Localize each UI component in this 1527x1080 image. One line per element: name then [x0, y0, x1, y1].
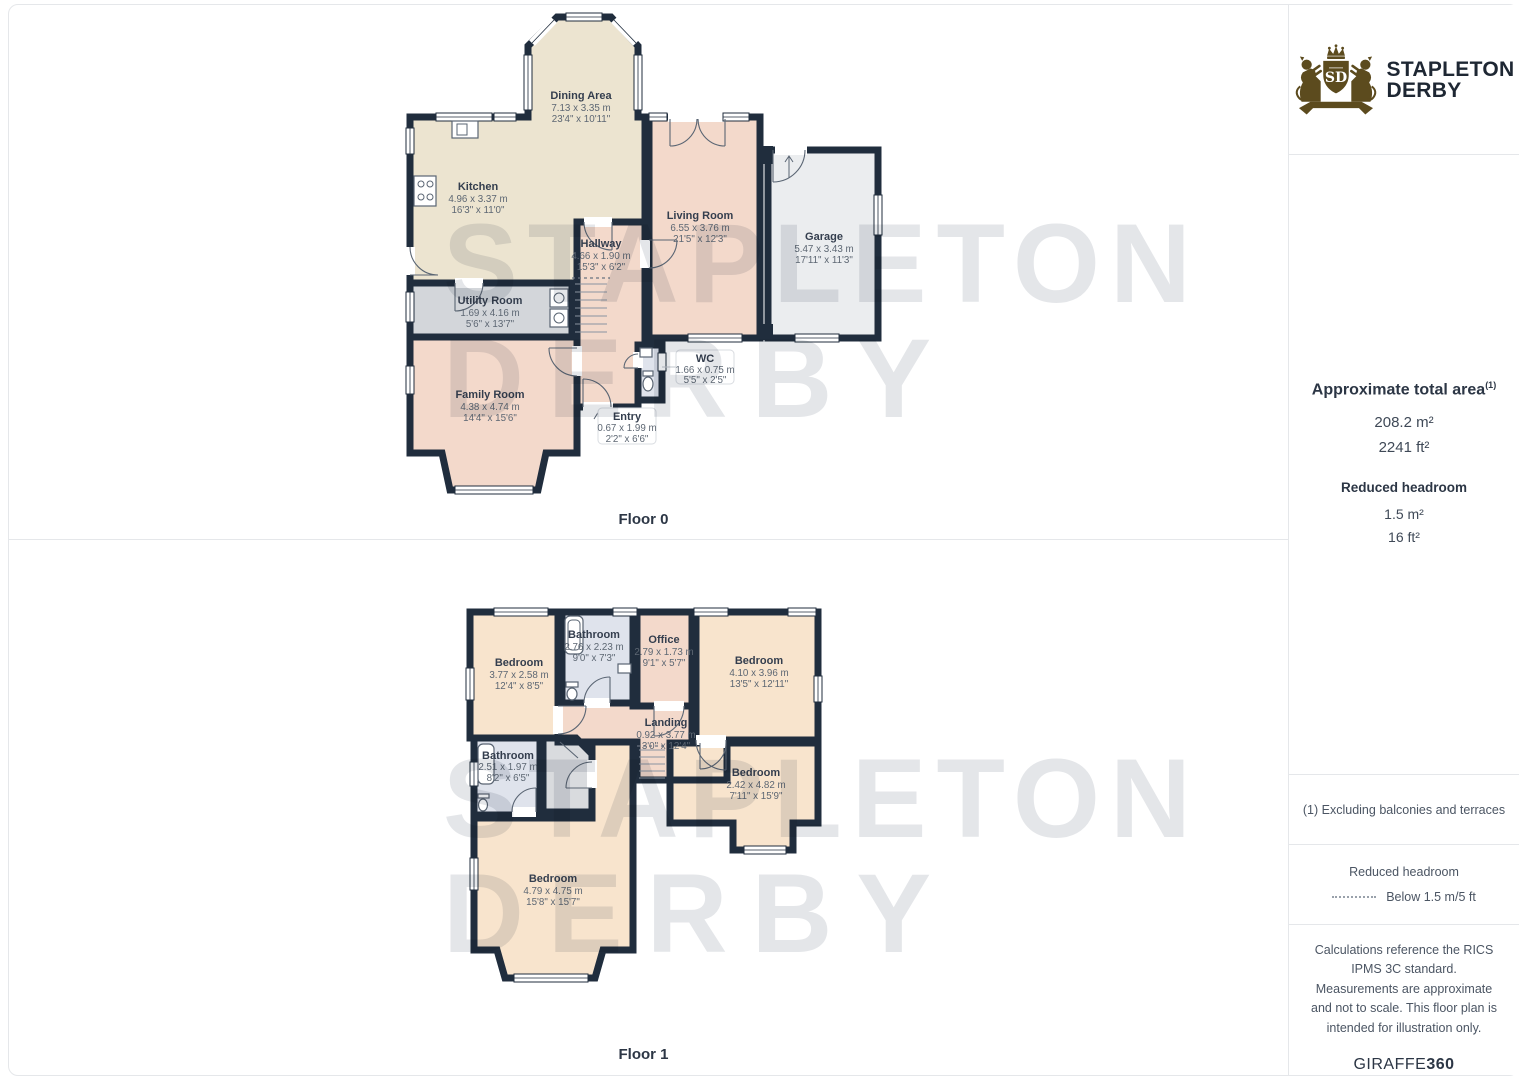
svg-text:2.76 x 2.23 m: 2.76 x 2.23 m [564, 642, 623, 653]
brand-name-line2: DERBY [1387, 80, 1515, 101]
legend-title: Reduced headroom [1349, 865, 1459, 879]
svg-text:9'0" x 7'3": 9'0" x 7'3" [573, 653, 616, 664]
info-sidebar: STAPLETON DERBY Approximate total area(1… [1288, 5, 1519, 1075]
footnote-marker: (1) [1485, 380, 1496, 390]
reduced-headroom-sqft: 16 ft² [1388, 526, 1420, 549]
svg-text:2.79 x 1.73 m: 2.79 x 1.73 m [634, 647, 693, 658]
disclaimer-text: Calculations reference the RICS IPMS 3C … [1309, 941, 1499, 1038]
legend: Reduced headroom Below 1.5 m/5 ft [1289, 845, 1519, 925]
watermark-text-line1: STAPLETON [443, 736, 1201, 861]
room-label-bedroom-tl: Bedroom 3.77 x 2.58 m 12'4" x 8'5" [489, 657, 548, 692]
floor0-label: Floor 0 [0, 511, 1287, 528]
area-footnote: (1) Excluding balconies and terraces [1289, 775, 1519, 845]
svg-text:9'1" x 5'7": 9'1" x 5'7" [643, 658, 686, 669]
sink-icon [618, 664, 631, 673]
total-area-sqm: 208.2 m² [1374, 410, 1433, 435]
legend-item: Below 1.5 m/5 ft [1386, 890, 1476, 904]
svg-text:Kitchen: Kitchen [458, 181, 499, 193]
svg-text:4.10 x 3.96 m: 4.10 x 3.96 m [729, 668, 788, 679]
giraffe360-credit: GIRAFFE360 [1309, 1056, 1499, 1074]
watermark-text-line1: STAPLETON [443, 201, 1201, 326]
room-label-bedroom-tr: Bedroom 4.10 x 3.96 m 13'5" x 12'11" [729, 655, 788, 690]
toilet-tank-icon [566, 682, 578, 687]
watermark-text-line2: DERBY [443, 851, 955, 976]
total-area-title: Approximate total area(1) [1312, 380, 1496, 399]
svg-text:Office: Office [648, 634, 679, 646]
dashed-line-swatch [1332, 896, 1376, 898]
svg-text:Bedroom: Bedroom [735, 655, 784, 667]
floor-panels-divider [9, 539, 1288, 540]
room-label-bathroom-top: Bathroom 2.76 x 2.23 m 9'0" x 7'3" [564, 629, 623, 664]
credit-name: GIRAFFE [1353, 1056, 1426, 1073]
floorplan-page: SD [0, 0, 1527, 1080]
stove-icon [414, 176, 436, 206]
reduced-headroom-sqm: 1.5 m² [1384, 503, 1424, 526]
brand-name-line1: STAPLETON [1387, 59, 1515, 80]
svg-text:7.13 x 3.35 m: 7.13 x 3.35 m [551, 103, 610, 114]
svg-text:Dining Area: Dining Area [550, 90, 612, 102]
toilet-icon [567, 688, 577, 700]
brand-logo: STAPLETON DERBY [1289, 5, 1519, 155]
total-area-sqft: 2241 ft² [1379, 435, 1430, 460]
svg-text:3.77 x 2.58 m: 3.77 x 2.58 m [489, 670, 548, 681]
area-summary: Approximate total area(1) 208.2 m² 2241 … [1289, 155, 1519, 775]
svg-text:23'4" x 10'11": 23'4" x 10'11" [552, 114, 611, 125]
svg-text:13'5" x 12'11": 13'5" x 12'11" [730, 679, 789, 690]
brand-name: STAPLETON DERBY [1387, 59, 1515, 101]
brand-crest-icon [1294, 43, 1378, 117]
room-label-dining: Dining Area 7.13 x 3.35 m 23'4" x 10'11" [550, 90, 612, 125]
watermark-text-line2: DERBY [443, 316, 955, 441]
svg-text:Bathroom: Bathroom [568, 629, 620, 641]
disclaimer: Calculations reference the RICS IPMS 3C … [1289, 925, 1519, 1075]
svg-text:Landing: Landing [645, 717, 688, 729]
reduced-headroom-title: Reduced headroom [1341, 480, 1467, 495]
credit-suffix: 360 [1426, 1056, 1454, 1073]
floor1-label: Floor 1 [0, 1046, 1287, 1063]
svg-text:12'4" x 8'5": 12'4" x 8'5" [495, 681, 544, 692]
svg-text:Bedroom: Bedroom [495, 657, 544, 669]
